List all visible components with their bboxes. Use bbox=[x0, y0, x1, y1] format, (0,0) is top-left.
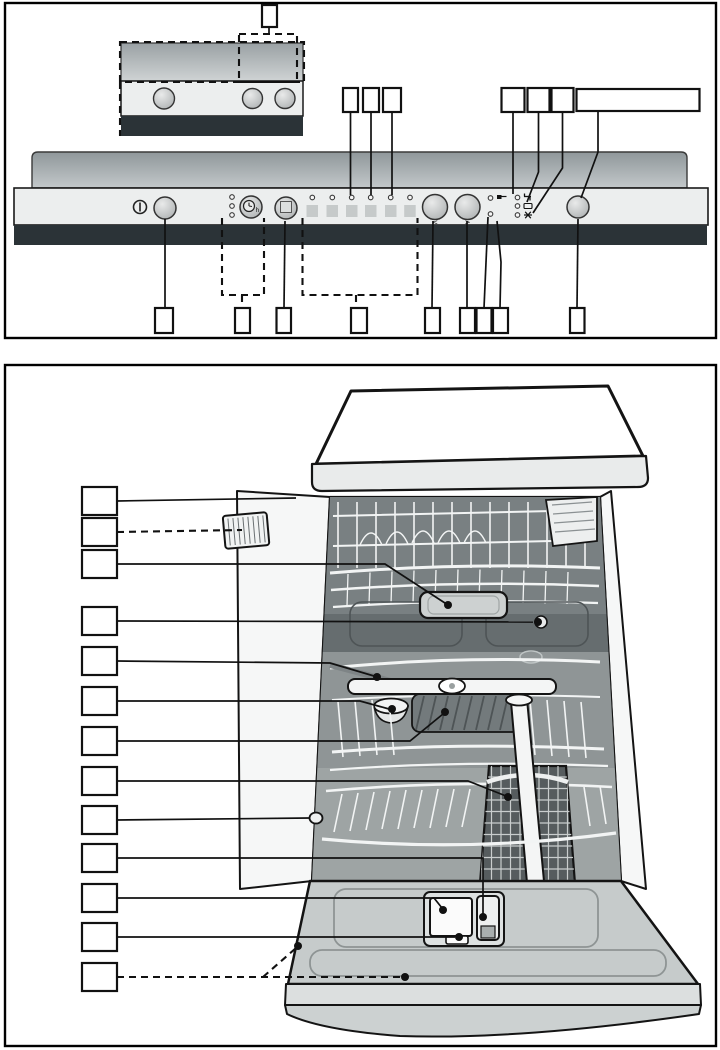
right-shelf bbox=[546, 497, 597, 546]
fascia-dark-band bbox=[14, 225, 707, 245]
figure-interior bbox=[5, 365, 716, 1046]
inset-top-band bbox=[121, 43, 303, 81]
door bbox=[285, 881, 701, 1037]
next-button bbox=[455, 195, 480, 220]
mid-band bbox=[300, 614, 640, 652]
square-icon bbox=[281, 202, 292, 213]
program-button bbox=[346, 205, 358, 217]
program-button bbox=[365, 205, 377, 217]
inset-callout bbox=[262, 5, 277, 34]
countertop-bar bbox=[32, 152, 687, 188]
start-button bbox=[567, 196, 589, 218]
door-inset bbox=[121, 43, 303, 136]
rack-knob bbox=[310, 813, 323, 824]
prev-button bbox=[423, 195, 448, 220]
inset-right-button bbox=[275, 89, 295, 109]
left-tray-callout bbox=[82, 518, 242, 546]
worktop bbox=[312, 386, 648, 491]
inset-left-button bbox=[154, 88, 175, 109]
program-button bbox=[385, 205, 397, 217]
figure-control-panel: h < > bbox=[5, 3, 716, 338]
timer-group-callout bbox=[235, 308, 250, 333]
program-group-callout bbox=[351, 308, 367, 333]
program-button bbox=[404, 205, 416, 217]
dispenser-chamber bbox=[430, 898, 472, 936]
door-bottom-band bbox=[285, 1005, 701, 1037]
diagram-canvas: h < > bbox=[0, 0, 720, 1050]
door-edge-band bbox=[285, 984, 701, 1005]
left-status-leds bbox=[230, 195, 235, 218]
manual-page: h < > bbox=[0, 0, 720, 1050]
on-off-button bbox=[154, 197, 176, 219]
tub-interior bbox=[300, 497, 640, 881]
inset-dark-band bbox=[121, 116, 303, 136]
program-button bbox=[327, 205, 339, 217]
timer-h-label: h bbox=[256, 207, 260, 214]
program-button bbox=[307, 205, 319, 217]
fascia-panel bbox=[14, 188, 708, 225]
inset-middle-button bbox=[243, 89, 263, 109]
